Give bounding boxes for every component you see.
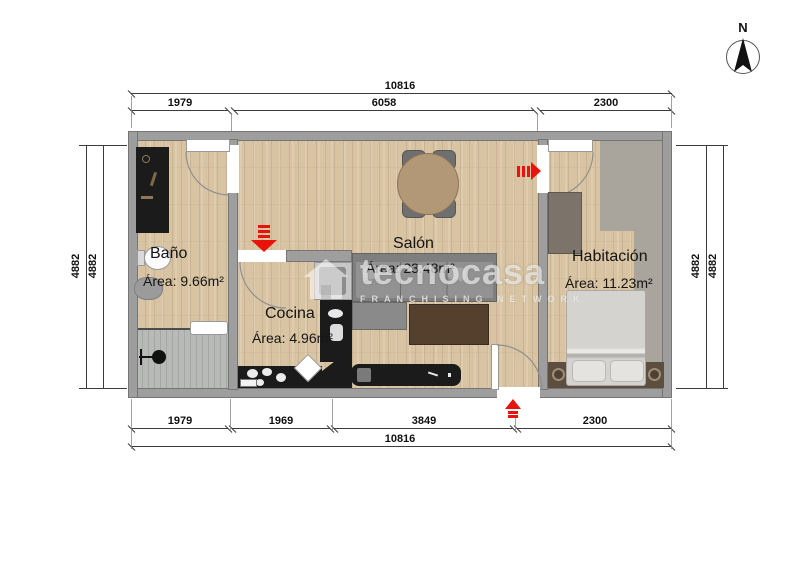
pillow: [610, 360, 644, 382]
entrance-arrow-icon: [508, 415, 518, 418]
bedroom-entry-arrow-icon: [527, 166, 530, 177]
room-label-cocina: Cocina: [265, 305, 315, 323]
entrance-arrow-icon: [508, 411, 518, 414]
room-area-cocina: Área: 4.96m²: [252, 330, 333, 346]
kitchen-entry-arrow-icon: [258, 235, 270, 238]
tv-console-knob: [448, 373, 451, 377]
laundry-fixture: [152, 350, 166, 364]
counter-item: [328, 309, 343, 318]
room-area-salon: Área: 23.48m²: [366, 260, 455, 276]
bedside-table: [648, 368, 661, 381]
room-area-habitacion: Área: 11.23m²: [565, 275, 653, 291]
radiator-bench: [190, 321, 228, 335]
tv-console-speaker: [357, 368, 371, 382]
bedroom-entry-arrow-icon: [531, 162, 541, 180]
sofa-chaise: [352, 302, 407, 330]
bedroom-entry-arrow-icon: [522, 166, 525, 177]
room-label-bano: Baño: [150, 245, 187, 263]
shower-drain-icon: [142, 155, 150, 163]
burner-1-icon: [247, 369, 258, 378]
entrance-arrow-icon: [505, 399, 521, 409]
floorplan-canvas: N: [0, 0, 800, 566]
burner-2-icon: [262, 368, 272, 376]
pillow: [572, 360, 606, 382]
coffee-table: [409, 304, 489, 345]
kitchen-entry-arrow-icon: [258, 225, 270, 228]
wardrobe: [548, 192, 582, 254]
bedroom-entry-arrow-icon: [517, 166, 520, 177]
kitchen-entry-arrow-icon: [251, 240, 277, 252]
burner-3-icon: [256, 379, 264, 386]
entrance-door-arc: [497, 345, 542, 390]
bathroom-door-arc: [186, 152, 229, 195]
dining-table: [397, 153, 459, 215]
laundry-fixture-post: [140, 349, 142, 365]
room-area-bano: Área: 9.66m²: [143, 273, 224, 289]
burner-4-icon: [276, 373, 286, 382]
shower-handle-icon: [141, 196, 153, 199]
room-label-habitacion: Habitación: [572, 248, 648, 266]
bedside-table: [552, 368, 565, 381]
oven-door: [240, 379, 257, 387]
shower-unit: [136, 147, 169, 233]
kitchen-door-arc: [240, 262, 286, 308]
fridge-top: [319, 267, 346, 295]
room-label-salon: Salón: [393, 235, 434, 253]
kitchen-entry-arrow-icon: [258, 230, 270, 233]
bedroom-door-arc: [548, 152, 593, 197]
